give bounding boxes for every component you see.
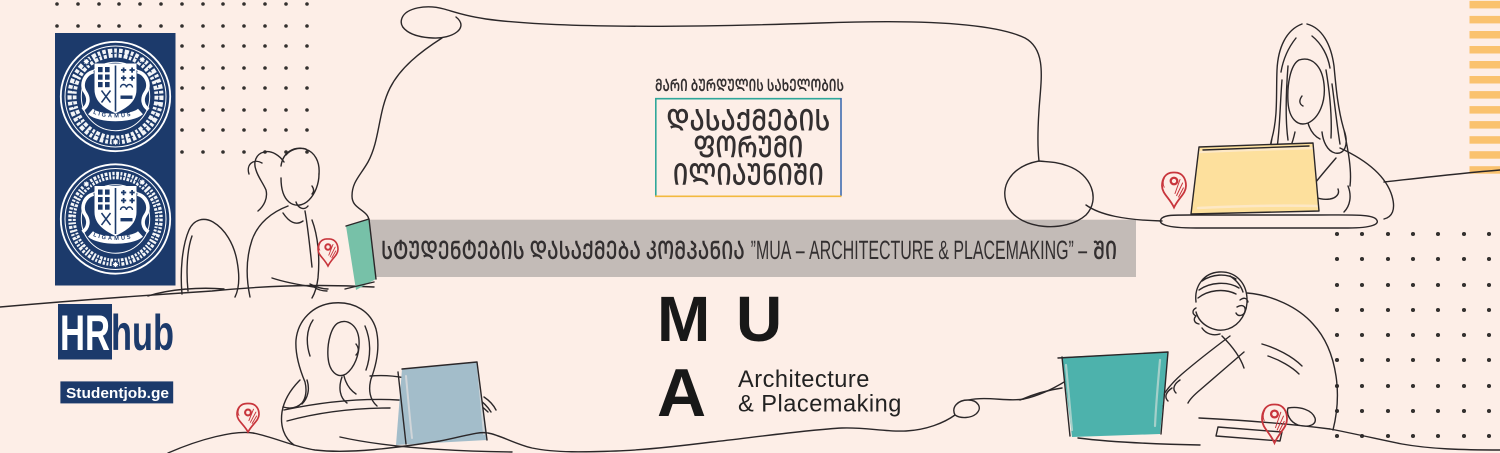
- svg-text:& Placemaking: & Placemaking: [738, 392, 902, 418]
- svg-text:U: U: [736, 283, 782, 355]
- svg-text:HR: HR: [60, 305, 110, 361]
- svg-text:M: M: [657, 283, 710, 355]
- svg-text:hub: hub: [111, 305, 174, 361]
- svg-text:Studentjob.ge: Studentjob.ge: [66, 386, 169, 402]
- svg-text:A: A: [657, 355, 706, 431]
- svg-text:Architecture: Architecture: [738, 367, 870, 393]
